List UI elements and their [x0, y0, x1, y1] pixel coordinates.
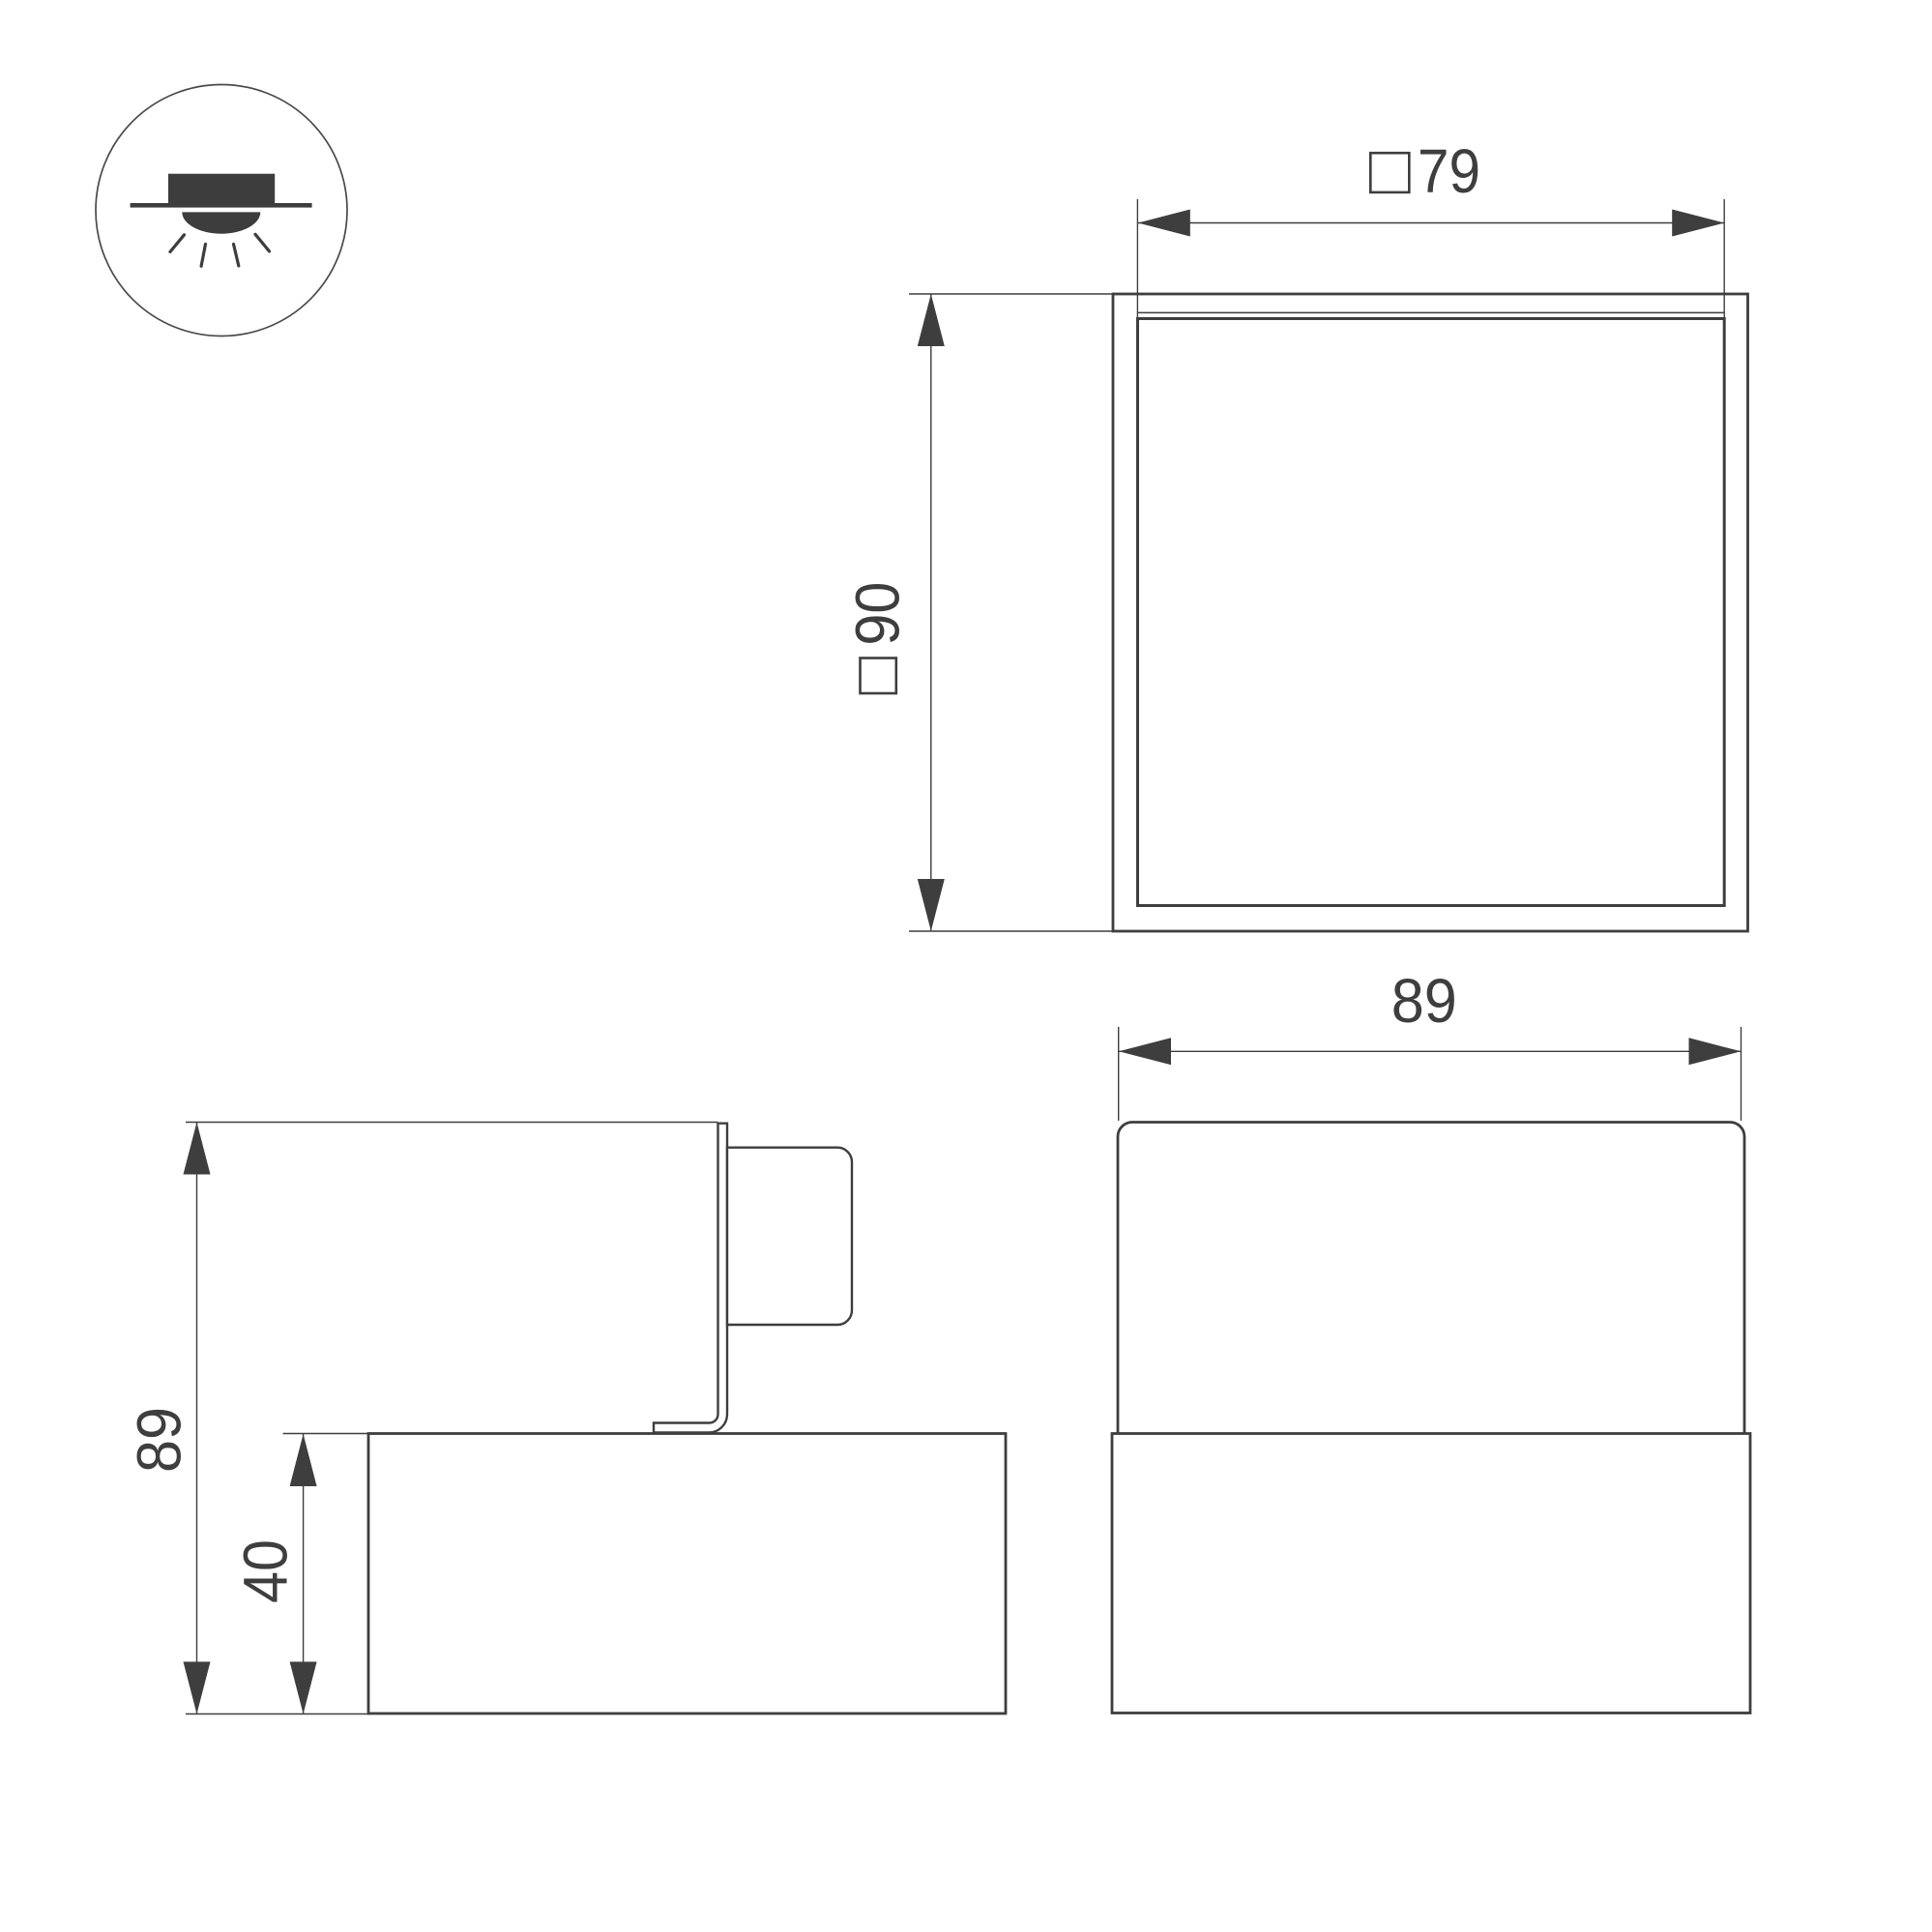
svg-text:89: 89	[125, 1407, 194, 1473]
svg-text:90: 90	[843, 582, 913, 646]
svg-text:79: 79	[1418, 136, 1480, 206]
svg-text:40: 40	[231, 1539, 301, 1603]
svg-text:89: 89	[1391, 966, 1457, 1036]
